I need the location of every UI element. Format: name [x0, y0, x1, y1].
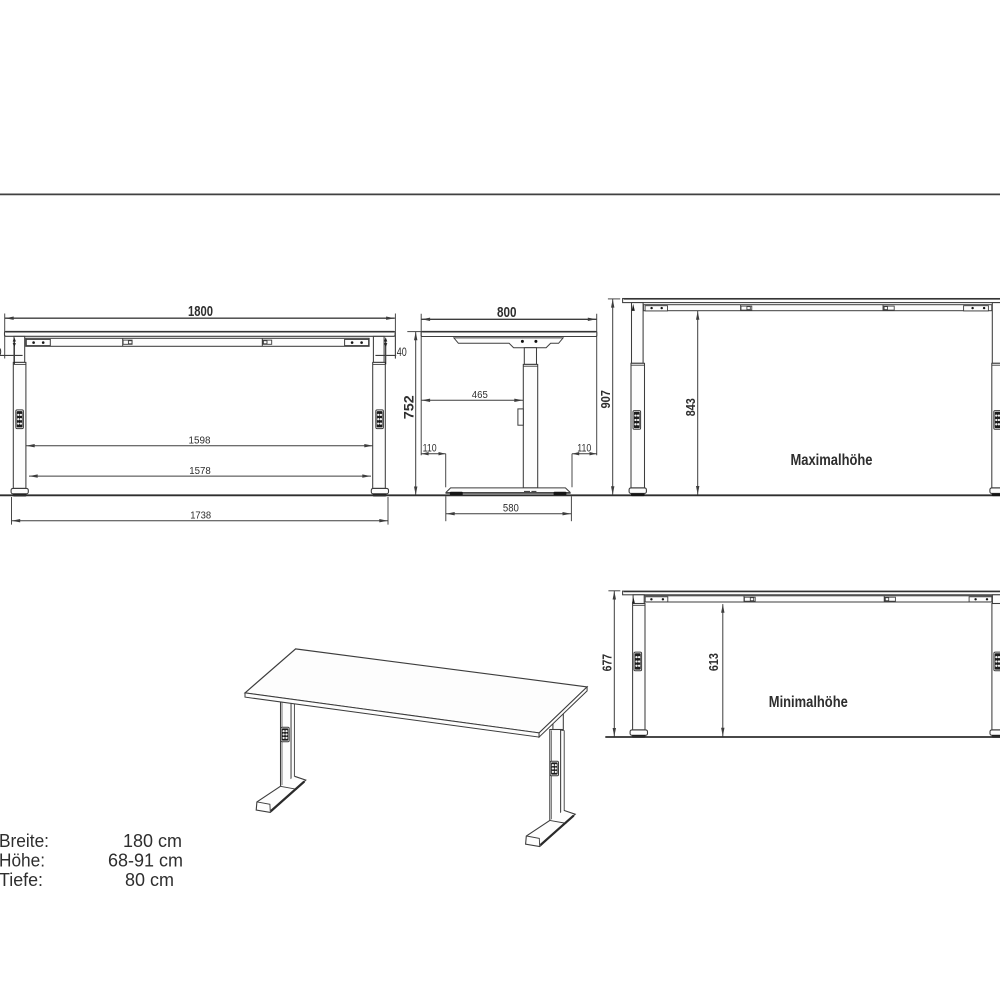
svg-text:677: 677 [600, 654, 614, 672]
svg-text:40: 40 [0, 347, 2, 359]
svg-text:843: 843 [684, 398, 698, 416]
svg-text:1738: 1738 [190, 510, 211, 521]
svg-text:Tiefe:: Tiefe: [0, 870, 43, 890]
svg-text:68-91 cm: 68-91 cm [108, 851, 183, 871]
svg-text:180 cm: 180 cm [123, 831, 182, 851]
svg-text:Minimalhöhe: Minimalhöhe [769, 694, 848, 711]
svg-text:465: 465 [472, 390, 488, 401]
svg-text:Höhe:: Höhe: [0, 851, 45, 871]
svg-text:580: 580 [503, 502, 519, 514]
svg-text:907: 907 [599, 390, 613, 409]
svg-text:Breite:: Breite: [0, 831, 49, 851]
svg-text:80 cm: 80 cm [125, 870, 174, 890]
svg-text:752: 752 [401, 395, 417, 419]
svg-text:800: 800 [497, 304, 517, 321]
svg-text:40: 40 [397, 347, 407, 359]
svg-text:1800: 1800 [188, 303, 213, 320]
svg-text:613: 613 [707, 653, 721, 671]
svg-text:110: 110 [423, 443, 437, 455]
svg-text:1598: 1598 [189, 436, 211, 447]
svg-text:110: 110 [577, 443, 591, 455]
svg-text:1578: 1578 [189, 466, 211, 477]
svg-text:Maximalhöhe: Maximalhöhe [791, 452, 873, 469]
